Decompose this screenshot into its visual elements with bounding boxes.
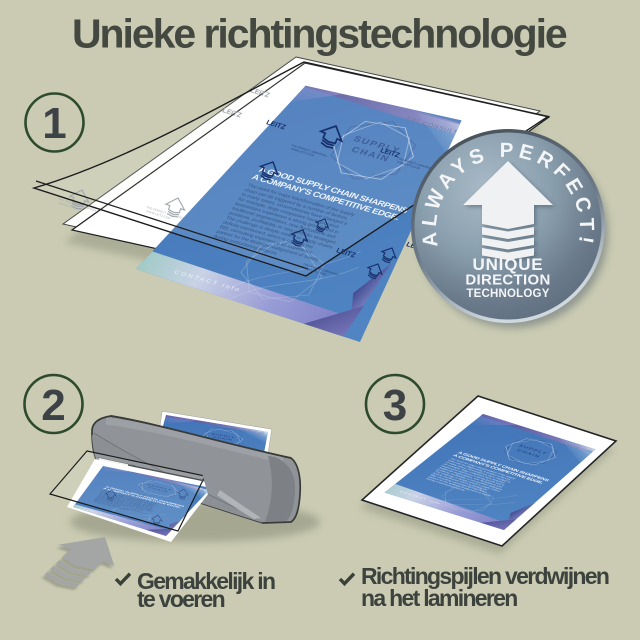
svg-text:2: 2: [41, 381, 65, 430]
svg-text:te voeren: te voeren: [137, 586, 225, 612]
svg-text:DIRECTION: DIRECTION: [465, 272, 550, 289]
svg-text:1: 1: [42, 99, 66, 148]
svg-text:3: 3: [383, 381, 407, 430]
svg-text:na het lamineren: na het lamineren: [361, 585, 517, 611]
svg-text:Unieke richtingstechnologie: Unieke richtingstechnologie: [72, 11, 567, 57]
svg-text:TECHNOLOGY: TECHNOLOGY: [466, 288, 549, 300]
